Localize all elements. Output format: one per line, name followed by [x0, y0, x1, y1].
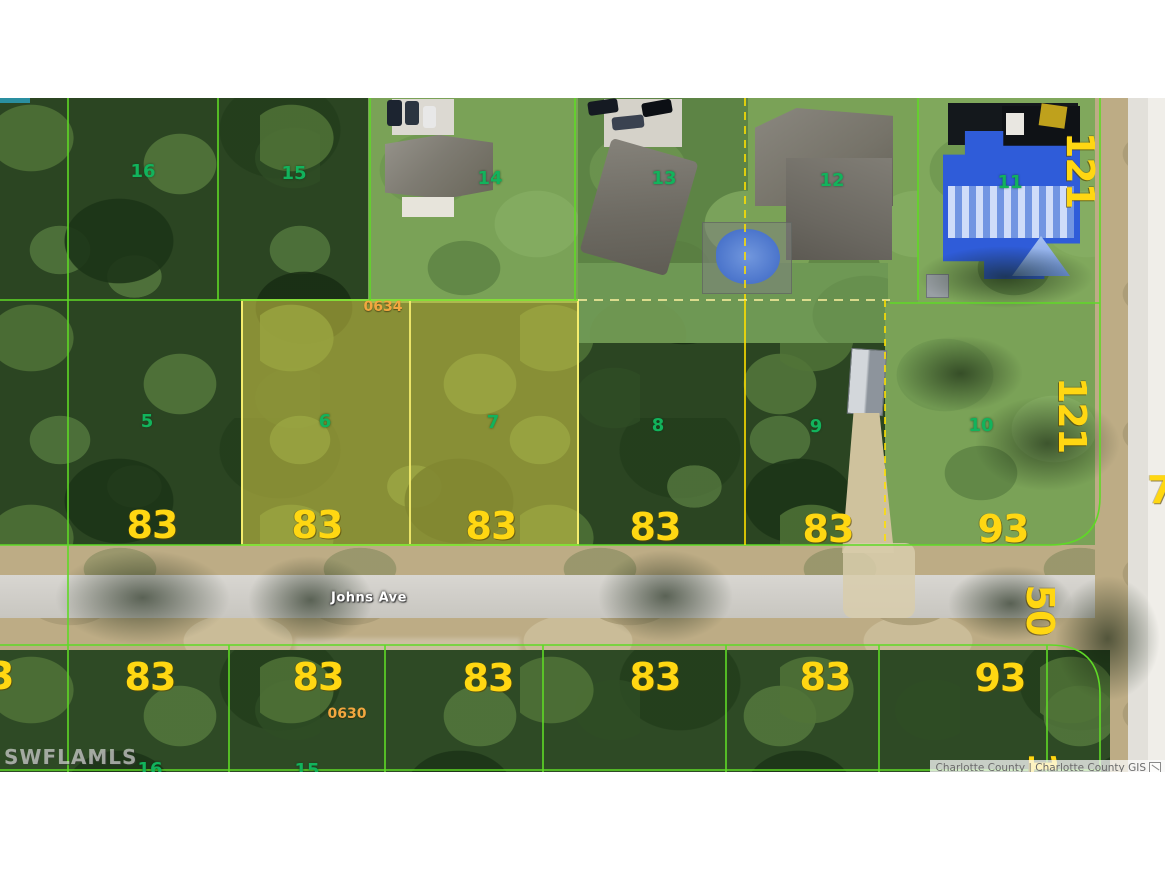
parcel-number-label: 9	[810, 418, 823, 436]
lot-dimension-label: 83	[630, 658, 681, 696]
map-labels: 1615141312115678910161583838383839383838…	[0, 98, 1165, 772]
parcel-number-label: 6	[319, 413, 332, 431]
street-name-label: Johns Ave	[331, 591, 407, 606]
lot-dimension-label: 7	[1147, 471, 1165, 509]
lot-dimension-label: 83	[803, 510, 854, 548]
parcel-number-label: 16	[137, 761, 162, 772]
lot-dimension-label: 83	[0, 657, 13, 695]
parcel-number-label: 13	[651, 170, 676, 188]
lot-dimension-label: 83	[292, 506, 343, 544]
parcel-number-label: 8	[652, 417, 665, 435]
lot-dimension-label: 83	[463, 659, 514, 697]
lot-dimension-label: 93	[978, 510, 1029, 548]
lot-dimension-label: 121	[1053, 377, 1091, 453]
lot-dimension-label: 50	[1021, 585, 1059, 636]
lot-dimension-label: 83	[630, 508, 681, 546]
lot-dimension-label: 121	[1061, 132, 1099, 208]
parcel-number-label: 14	[477, 170, 502, 188]
parcel-number-label: 15	[281, 165, 306, 183]
parcel-number-label: 5	[141, 413, 154, 431]
parcel-number-label: 10	[968, 417, 993, 435]
lot-dimension-label: 83	[125, 658, 176, 696]
lot-dimension-label: 93	[975, 659, 1026, 697]
mls-watermark: SWFLAMLS	[4, 745, 137, 769]
parcel-number-label: 11	[997, 174, 1022, 192]
parcel-number-label: 15	[294, 762, 319, 772]
aerial-map: 1615141312115678910161583838383839383838…	[0, 98, 1165, 772]
lot-dimension-label: 83	[800, 658, 851, 696]
attribution-logo-icon	[1149, 762, 1161, 772]
parcel-number-label: 16	[130, 163, 155, 181]
lot-dimension-label: 83	[293, 658, 344, 696]
parcel-number-label: 7	[487, 414, 500, 432]
attribution-bar: Charlotte County | Charlotte County GIS	[930, 760, 1165, 772]
attribution-text: Charlotte County | Charlotte County GIS	[936, 762, 1146, 772]
lot-dimension-label: 83	[127, 506, 178, 544]
lot-dimension-label: 83	[466, 507, 517, 545]
parcel-number-label: 12	[819, 172, 844, 190]
block-number-label: 0630	[328, 707, 367, 721]
block-number-label: 0634	[364, 300, 403, 314]
mls-aerial-listing-image: 1615141312115678910161583838383839383838…	[0, 0, 1165, 873]
